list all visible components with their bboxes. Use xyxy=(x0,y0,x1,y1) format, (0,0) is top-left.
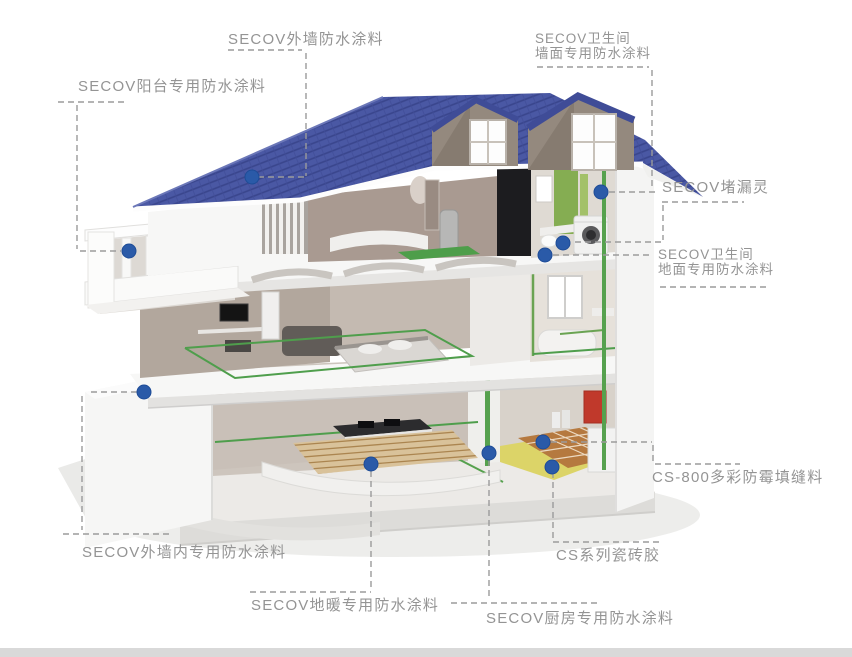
label-text: SECOV厨房专用防水涂料 xyxy=(486,610,674,627)
marker-dot-leak-stopper xyxy=(556,236,570,250)
louvered-window xyxy=(262,198,308,254)
label-bathroom-floor-coating: SECOV卫生间 地面专用防水涂料 xyxy=(658,247,774,277)
marker-dot-bathroom-floor xyxy=(538,248,552,262)
label-cs800-grout: CS-800多彩防霉填缝料 xyxy=(652,469,823,486)
marker-dot-bathroom-wall xyxy=(594,185,608,199)
marker-dot-tile-grout xyxy=(536,435,550,449)
marker-dot-floor-heating xyxy=(364,457,378,471)
tv xyxy=(220,304,248,321)
label-text: CS系列瓷砖胶 xyxy=(556,547,660,564)
marker-dot-tile-adhesive xyxy=(545,460,559,474)
water-dispenser xyxy=(262,292,279,339)
label-floor-heating-coating: SECOV地暖专用防水涂料 xyxy=(251,597,439,614)
label-leak-stopper: SECOV堵漏灵 xyxy=(662,179,769,196)
marker-dot-kitchen xyxy=(482,446,496,460)
label-interior-exterior-wall-coating: SECOV外墙内专用防水涂料 xyxy=(82,544,286,561)
label-text: SECOV堵漏灵 xyxy=(662,179,769,196)
label-text: SECOV地暖专用防水涂料 xyxy=(251,597,439,614)
label-tile-adhesive: CS系列瓷砖胶 xyxy=(556,547,660,564)
label-text: SECOV外墙防水涂料 xyxy=(228,31,384,48)
label-kitchen-coating: SECOV厨房专用防水涂料 xyxy=(486,610,674,627)
green-pipe-line xyxy=(602,170,606,470)
marker-dot-balcony xyxy=(122,244,136,258)
label-text: CS-800多彩防霉填缝料 xyxy=(652,469,823,486)
label-balcony-coating: SECOV阳台专用防水涂料 xyxy=(78,78,266,95)
label-text: SECOV阳台专用防水涂料 xyxy=(78,78,266,95)
label-text: SECOV卫生间 xyxy=(535,31,651,46)
label-text: SECOV卫生间 xyxy=(658,247,774,262)
marker-dot-interior-wall xyxy=(137,385,151,399)
label-text: SECOV外墙内专用防水涂料 xyxy=(82,544,286,561)
bottom-gray-bar xyxy=(0,648,852,657)
label-exterior-wall-coating: SECOV外墙防水涂料 xyxy=(228,31,384,48)
label-text: 地面专用防水涂料 xyxy=(658,262,774,277)
house-waterproofing-diagram: SECOV外墙防水涂料 SECOV阳台专用防水涂料 SECOV卫生间 墙面专用防… xyxy=(0,0,852,657)
label-text: 墙面专用防水涂料 xyxy=(535,46,651,61)
marker-dot-exterior-wall xyxy=(245,170,259,184)
label-bathroom-wall-coating: SECOV卫生间 墙面专用防水涂料 xyxy=(535,31,651,61)
